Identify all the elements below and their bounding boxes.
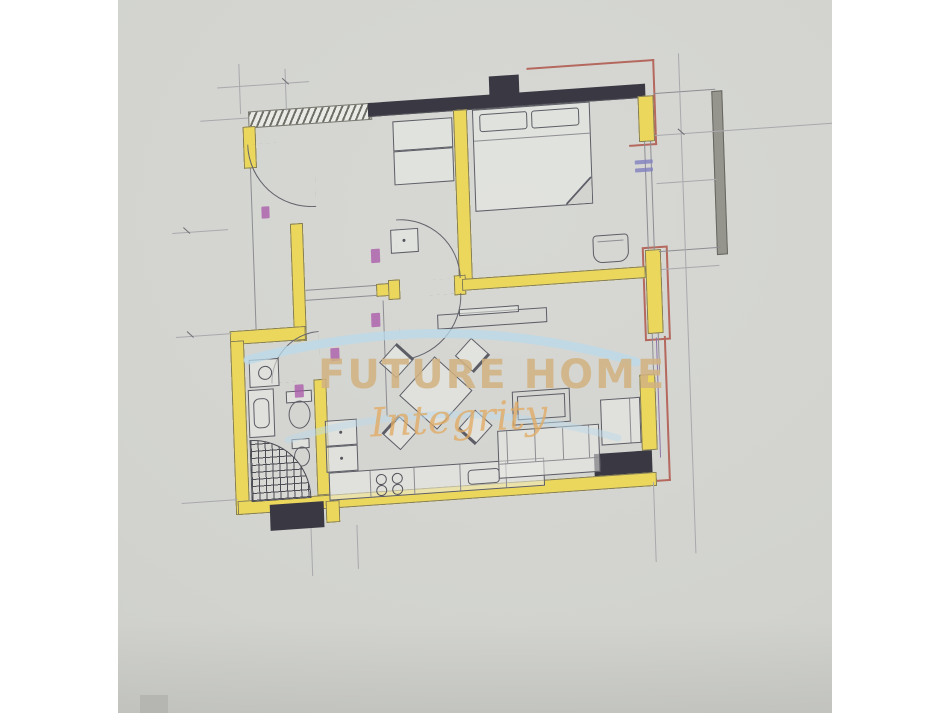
watermark-tagline: Integrity xyxy=(369,391,549,446)
floor-plan-photo: FUTURE HOME Integrity xyxy=(118,0,832,713)
screenshot: FUTURE HOME Integrity xyxy=(0,0,950,713)
watermark-brand: FUTURE HOME xyxy=(318,352,666,398)
photo-corner-square xyxy=(140,695,168,713)
photo-bottom-shade xyxy=(118,620,832,713)
